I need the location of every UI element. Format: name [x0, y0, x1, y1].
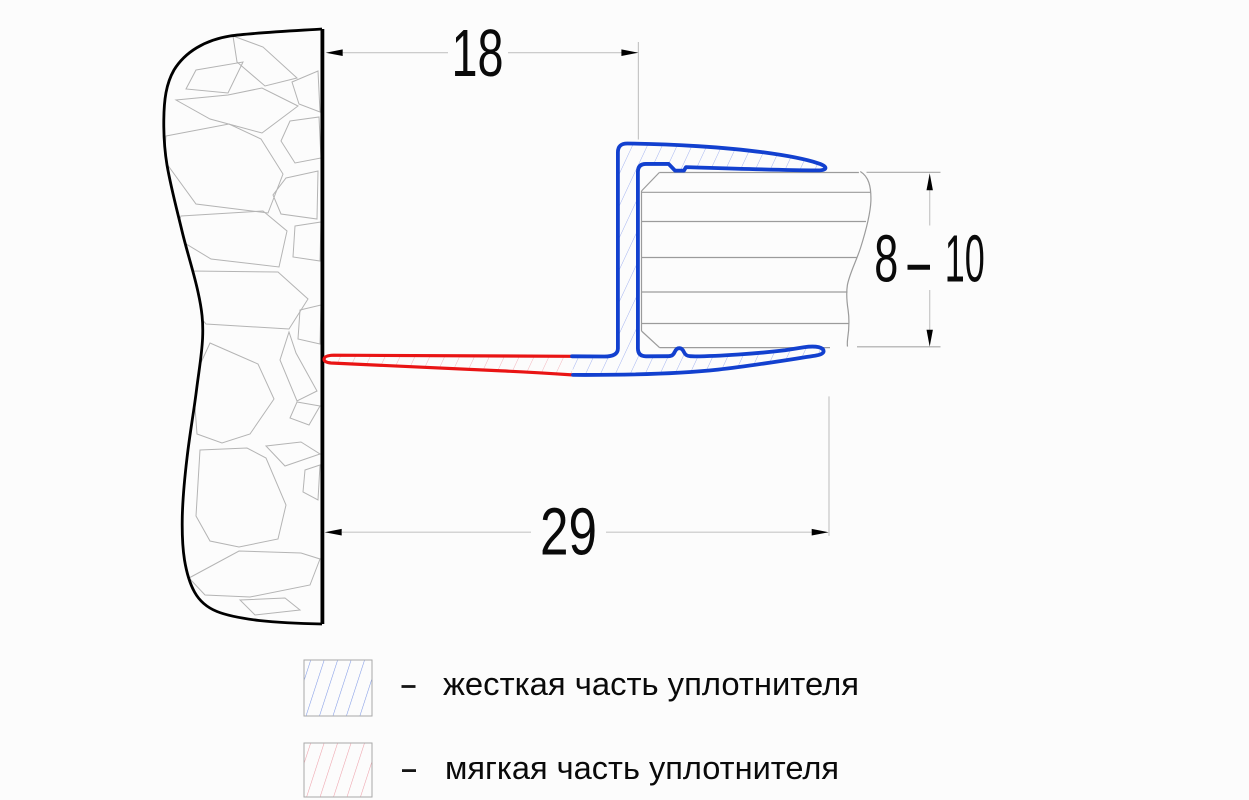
svg-text:8: 8 — [874, 221, 898, 296]
svg-text:29: 29 — [540, 495, 597, 570]
svg-text:жесткая часть уплотнителя: жесткая часть уплотнителя — [443, 666, 859, 702]
svg-text:18: 18 — [452, 16, 504, 91]
svg-text:10: 10 — [945, 221, 985, 296]
svg-text:мягкая часть уплотнителя: мягкая часть уплотнителя — [445, 750, 839, 786]
